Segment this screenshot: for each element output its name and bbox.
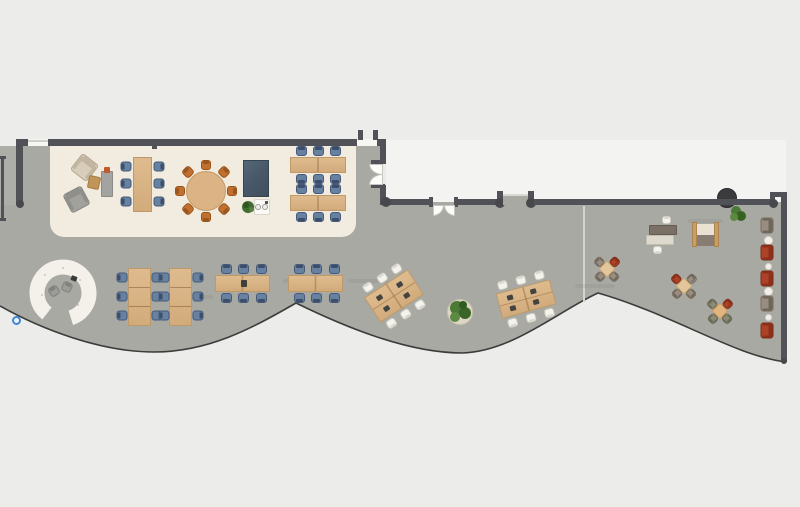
chair-back [664,217,670,219]
desk-chair [238,293,249,303]
meeting-chair [121,179,132,189]
chair-back [161,180,164,187]
desk-chair [159,311,170,321]
chair-back [332,147,340,150]
round-table-chair [175,186,185,196]
meeting-chair [154,162,165,172]
chair-back [118,274,121,281]
chair-back [298,147,306,150]
reception-chair [47,284,61,298]
wall-top [48,139,357,146]
desk-bank [288,275,343,292]
desk-chair [221,264,232,274]
chair-back [389,323,396,329]
desk-chair [117,273,128,283]
desk-chair [399,308,412,321]
door-leaf [444,205,455,216]
chair-back [313,265,321,268]
chair-back [510,323,517,327]
wall-column [769,199,778,208]
lounge-armchair [761,323,774,339]
desk-chair [525,312,537,323]
lunch-chair [330,146,341,156]
chair-back [517,276,524,280]
wall-tick [152,146,157,149]
lunch-chair [296,146,307,156]
chair-arm [676,274,681,279]
wall-left [16,139,23,205]
chair-back [535,271,542,275]
chair-back [203,161,210,164]
entry-line [503,194,528,196]
desk-chair [159,292,170,302]
chair-back [315,147,323,150]
lunch-chair [313,212,324,222]
wall-sliver-cap [0,156,6,159]
chair-back [404,313,411,319]
chair-back [331,299,339,302]
desk-chair [256,264,267,274]
desk-chair [311,293,322,303]
entry-floor [503,196,528,205]
round-table-chair [201,160,211,170]
lunch-chair [296,184,307,194]
desk-chair [221,293,232,303]
chair-back [122,163,125,170]
chair-arm [712,299,717,304]
wall-bottom [458,199,500,205]
chair-arm [676,293,681,298]
laptop [241,280,247,287]
wall-column [381,197,391,207]
reception-item [70,275,77,282]
wall-sliver-cap [0,218,6,221]
desk-chair [329,264,340,274]
door-leaf [433,205,444,216]
chair-back [240,265,248,268]
manager-desk [646,235,674,245]
round-table-chair [201,212,211,222]
lounge-armchair [761,218,774,234]
chair-back [258,299,266,302]
chair-arm [762,272,771,274]
chair-back [332,185,340,188]
desk-chair [159,273,170,283]
chair-arm [762,257,771,259]
selection-handle[interactable] [12,316,21,325]
side-table [765,263,772,270]
wall-cap [16,200,24,208]
chair-back [233,188,236,195]
chair-arm [762,297,771,299]
desk-chair [543,307,555,318]
desk-bank [364,269,424,322]
side-table [765,314,772,321]
chair-back [363,282,370,288]
chair-arm [595,261,600,266]
desk-chair [193,311,204,321]
desk-bank [128,268,151,326]
chair-back [378,273,385,279]
column-round [717,188,737,208]
chair-back [223,265,231,268]
chair-arm [614,261,619,266]
chair-back [161,163,164,170]
chair-arm [762,246,771,248]
desk-bank [169,268,192,326]
desk-chair [533,270,545,281]
watermark [575,284,615,288]
chair-back [65,282,72,287]
chair-back [296,265,304,268]
desk-chair [329,293,340,303]
chair-back [200,312,203,319]
desk-chair [311,264,322,274]
plant-leaf [450,312,460,322]
wall-right [781,192,787,362]
chair-back [49,286,56,292]
cabinet-accent [104,167,110,173]
meeting-table [133,157,152,212]
booth-sofa-cushion [697,235,714,246]
booth-sofa-frame [714,222,719,247]
chair-arm [708,303,713,308]
chair-arm [762,335,771,337]
chair-arm [762,219,771,221]
side-table [764,236,773,245]
side-table [764,287,773,296]
chair-arm [762,283,771,285]
floor-plan [0,0,800,507]
desk-chair [653,246,662,254]
chair-back [160,293,163,300]
plant-leaf [243,202,249,208]
printer-mark [265,201,268,204]
chair-back [160,274,163,281]
door-leaf [369,174,383,185]
wall-bottom [534,199,771,205]
chair-arm [727,314,732,319]
chair-back [528,318,535,322]
desk-chair [193,273,204,283]
desk-chair [497,279,509,290]
lounge-armchair [761,296,774,312]
chair-back [258,265,266,268]
desk-chair [507,317,519,328]
reception-chair [60,280,73,293]
chair-arm [712,318,717,323]
chair-arm [691,289,696,294]
desk-chair [515,275,527,286]
desk-chair [238,264,249,274]
chair-back [332,218,340,221]
chair-back [315,218,323,221]
chair-arm [762,230,771,232]
chair-back [176,188,179,195]
chair-arm [599,257,604,262]
plant-leaf [730,213,738,221]
lunch-chair [330,212,341,222]
lunch-chair [296,212,307,222]
chair-back [296,299,304,302]
lunch-chair [313,146,324,156]
chair-back [223,299,231,302]
chair-back [331,265,339,268]
wall-cap [781,358,787,364]
printer-knob [255,204,261,210]
lunch-chair [330,174,341,184]
printer-knob [262,204,268,210]
chair-arm [599,276,604,281]
meeting-chair [121,162,132,172]
chair-back [161,198,164,205]
desk-chair [294,293,305,303]
chair-back [298,180,306,183]
lunch-table [290,195,346,211]
chair-arm [727,303,732,308]
desk-chair [256,293,267,303]
chair-back [298,185,306,188]
chair-back [498,281,505,285]
door-jamb [358,130,363,140]
meeting-chair [121,197,132,207]
chair-back [160,312,163,319]
desk-chair [294,264,305,274]
chair-back [655,251,661,253]
chair-back [122,198,125,205]
wall-sliver [1,157,4,221]
lunch-chair [296,174,307,184]
door-threshold [28,140,48,142]
chair-back [240,299,248,302]
plant-leaf [249,207,254,212]
lunch-chair [313,184,324,194]
desk-chair [662,216,671,224]
chair-back [418,304,425,310]
lunch-table [290,157,346,173]
lounge-armchair [761,271,774,287]
chair-back [315,185,323,188]
chair-arm [691,278,696,283]
chair-back [200,293,203,300]
chair-back [332,180,340,183]
desk-chair [385,317,398,330]
round-table-chair [227,186,237,196]
chair-back [183,167,190,174]
chair-back [122,180,125,187]
meeting-chair [154,197,165,207]
lunch-chair [313,174,324,184]
chair-arm [614,272,619,277]
chair-arm [672,278,677,283]
area-rug [243,160,269,197]
desk-chair [117,311,128,321]
chair-back [118,312,121,319]
chair-back [392,264,399,270]
plant-leaf [459,301,467,309]
door-opening [357,139,377,146]
chair-back [546,313,553,317]
chair-back [315,180,323,183]
booth-sofa-cushion [697,224,714,235]
desk-chair [193,292,204,302]
chair-back [200,274,203,281]
chair-back [298,218,306,221]
chair-arm [762,308,771,310]
chair-back [313,299,321,302]
meeting-chair [154,179,165,189]
desk-chair [117,292,128,302]
lounge-cabinet [101,171,113,197]
chair-back [203,218,210,221]
manager-desk [649,225,677,235]
chair-back [118,293,121,300]
desk-chair [413,298,426,311]
lunch-chair [330,184,341,194]
lounge-armchair [761,245,774,261]
furniture-layer [0,0,800,507]
chair-arm [762,324,771,326]
